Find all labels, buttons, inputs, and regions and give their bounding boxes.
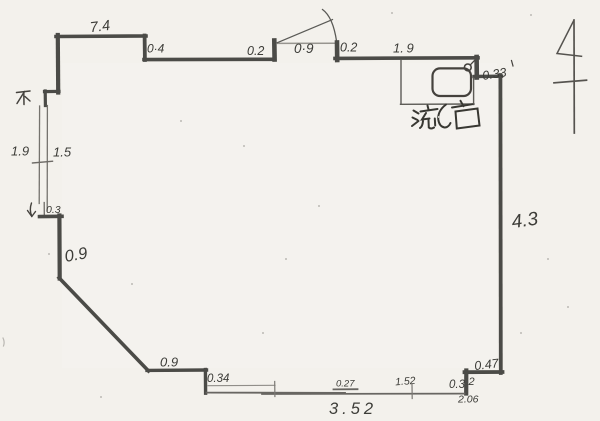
svg-text:0.2: 0.2: [340, 41, 357, 55]
svg-text:1. 9: 1. 9: [393, 41, 414, 56]
svg-text:4.3: 4.3: [510, 209, 540, 234]
svg-text:0·9: 0·9: [294, 41, 314, 56]
svg-text:1.52: 1.52: [395, 375, 416, 388]
svg-text:2: 2: [468, 376, 475, 388]
svg-text:0.3: 0.3: [46, 204, 61, 216]
svg-text:0.27: 0.27: [336, 379, 355, 390]
svg-text:0.3: 0.3: [449, 379, 466, 391]
svg-text:1.5: 1.5: [53, 145, 72, 160]
svg-text:0.34: 0.34: [207, 373, 229, 385]
svg-text:0.9: 0.9: [160, 355, 178, 370]
svg-text:1.9: 1.9: [11, 144, 29, 159]
svg-text:0·4: 0·4: [147, 42, 165, 56]
svg-text:2.06: 2.06: [457, 394, 479, 406]
svg-text:0.2: 0.2: [247, 44, 264, 58]
svg-text:3.52: 3.52: [329, 400, 377, 418]
svg-text:7.4: 7.4: [89, 18, 111, 36]
